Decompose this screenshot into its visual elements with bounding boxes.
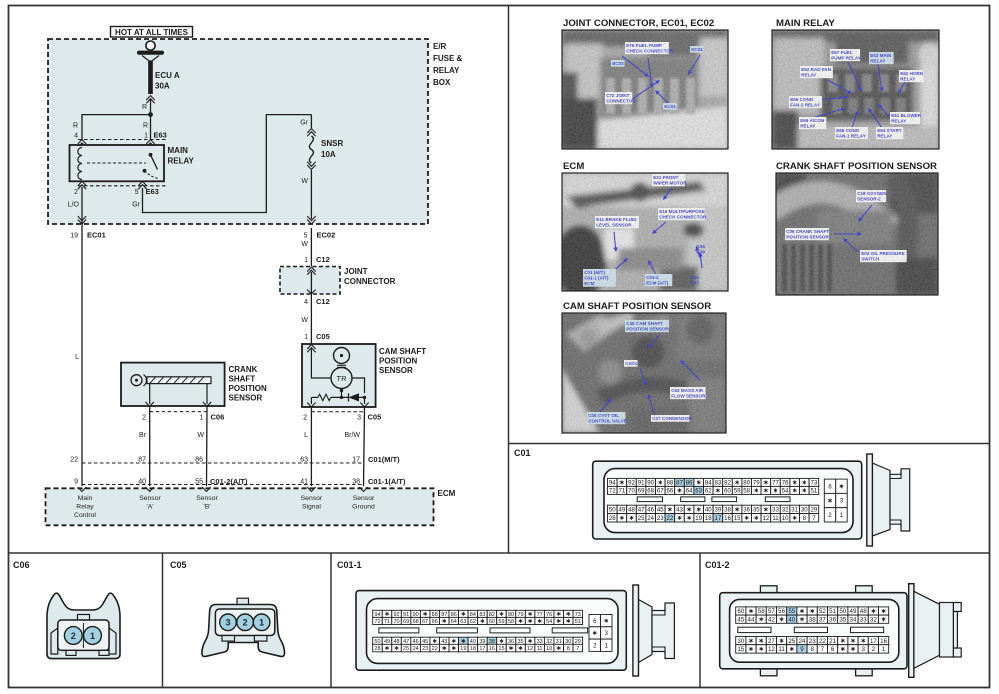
svg-text:W: W [301, 178, 308, 185]
svg-text:R: R [143, 123, 148, 130]
svg-text:10: 10 [782, 515, 789, 522]
svg-text:29: 29 [811, 507, 818, 514]
svg-text:33: 33 [772, 507, 779, 514]
svg-text:2: 2 [872, 646, 876, 653]
svg-text:L/O: L/O [68, 202, 80, 209]
svg-text:15: 15 [498, 646, 504, 652]
svg-text:40: 40 [705, 507, 712, 514]
svg-text:30: 30 [737, 638, 744, 645]
svg-text:2: 2 [74, 189, 78, 196]
svg-text:18: 18 [470, 646, 476, 652]
svg-text:1: 1 [259, 618, 264, 628]
svg-text:84: 84 [705, 480, 712, 487]
svg-text:TR: TR [337, 374, 348, 383]
svg-text:22: 22 [70, 457, 78, 464]
svg-text:JOINT: JOINT [344, 267, 368, 276]
svg-text:Sensor: Sensor [139, 495, 161, 502]
svg-text:38: 38 [724, 507, 731, 514]
svg-text:12: 12 [768, 646, 775, 653]
svg-text:17: 17 [479, 646, 485, 652]
svg-text:52: 52 [819, 608, 826, 615]
svg-text:C01-1(A/T): C01-1(A/T) [368, 477, 406, 486]
svg-text:'A': 'A' [146, 504, 153, 511]
svg-text:80: 80 [508, 612, 514, 618]
svg-text:1: 1 [304, 257, 308, 264]
svg-text:47: 47 [638, 507, 645, 514]
svg-text:71: 71 [619, 488, 626, 495]
svg-text:RELAY: RELAY [168, 157, 195, 166]
svg-text:80: 80 [743, 480, 750, 487]
svg-text:77: 77 [537, 612, 543, 618]
svg-text:3: 3 [225, 618, 230, 628]
svg-text:2: 2 [243, 618, 248, 628]
svg-text:35: 35 [753, 507, 760, 514]
svg-text:12: 12 [527, 646, 533, 652]
svg-text:45: 45 [737, 616, 744, 623]
svg-text:79: 79 [518, 612, 524, 618]
svg-text:67: 67 [422, 619, 428, 625]
svg-text:SENSOR: SENSOR [379, 366, 413, 375]
svg-text:11: 11 [778, 646, 785, 653]
svg-text:W: W [197, 432, 204, 439]
svg-text:5: 5 [135, 189, 139, 196]
svg-text:41: 41 [300, 479, 308, 486]
svg-text:25: 25 [788, 638, 795, 645]
svg-text:82: 82 [489, 612, 495, 618]
svg-text:Main: Main [78, 495, 93, 502]
svg-text:24: 24 [647, 515, 654, 522]
svg-text:55: 55 [788, 608, 795, 615]
svg-text:84: 84 [470, 612, 476, 618]
svg-text:16: 16 [724, 515, 731, 522]
svg-text:57: 57 [768, 608, 775, 615]
svg-text:83: 83 [715, 480, 722, 487]
svg-text:1: 1 [882, 646, 886, 653]
svg-text:59: 59 [498, 619, 504, 625]
svg-text:46: 46 [647, 507, 654, 514]
svg-text:60: 60 [724, 488, 731, 495]
svg-text:86: 86 [195, 457, 203, 464]
svg-text:1: 1 [200, 415, 204, 422]
svg-text:59: 59 [734, 488, 741, 495]
svg-text:88: 88 [667, 480, 674, 487]
svg-text:87: 87 [441, 612, 447, 618]
svg-text:3: 3 [861, 646, 865, 653]
svg-text:38: 38 [352, 479, 360, 486]
svg-text:8: 8 [810, 646, 814, 653]
svg-text:1: 1 [90, 631, 95, 641]
svg-text:79: 79 [753, 480, 760, 487]
svg-text:40: 40 [138, 479, 146, 486]
svg-text:CRANK: CRANK [229, 365, 258, 374]
svg-text:11: 11 [772, 515, 779, 522]
svg-text:MAIN: MAIN [168, 146, 189, 155]
svg-text:63: 63 [695, 488, 702, 495]
svg-text:36: 36 [743, 507, 750, 514]
svg-text:32: 32 [870, 616, 877, 623]
svg-text:58: 58 [508, 619, 514, 625]
svg-text:4: 4 [74, 133, 78, 140]
svg-text:22: 22 [667, 515, 674, 522]
svg-text:64: 64 [686, 488, 693, 495]
svg-text:48: 48 [628, 507, 635, 514]
svg-text:C06: C06 [13, 560, 30, 570]
svg-text:36: 36 [829, 616, 836, 623]
svg-text:MAIN RELAY: MAIN RELAY [776, 18, 835, 29]
svg-text:51: 51 [829, 608, 836, 615]
svg-text:54: 54 [782, 488, 789, 495]
svg-text:19: 19 [460, 646, 466, 652]
svg-text:30A: 30A [155, 82, 170, 91]
svg-text:34: 34 [850, 616, 857, 623]
svg-text:R: R [142, 104, 147, 111]
svg-text:27: 27 [768, 638, 775, 645]
svg-text:Ground: Ground [352, 504, 375, 511]
svg-text:92: 92 [393, 612, 399, 618]
svg-text:38: 38 [809, 616, 816, 623]
svg-text:87: 87 [676, 480, 683, 487]
svg-text:91: 91 [403, 612, 409, 618]
svg-text:39: 39 [715, 507, 722, 514]
svg-text:94: 94 [609, 480, 616, 487]
svg-text:88: 88 [432, 612, 438, 618]
svg-text:31: 31 [791, 507, 798, 514]
svg-text:82: 82 [724, 480, 731, 487]
svg-text:76: 76 [546, 612, 552, 618]
svg-text:62: 62 [705, 488, 712, 495]
svg-text:72: 72 [374, 619, 380, 625]
svg-text:94: 94 [374, 612, 380, 618]
svg-text:92: 92 [628, 480, 635, 487]
svg-text:SHAFT: SHAFT [229, 375, 256, 384]
svg-text:23: 23 [657, 515, 664, 522]
svg-text:R: R [73, 123, 78, 130]
svg-text:2: 2 [71, 631, 76, 641]
svg-text:87: 87 [138, 457, 146, 464]
svg-text:10A: 10A [321, 150, 336, 159]
svg-text:50: 50 [839, 608, 846, 615]
svg-text:22: 22 [432, 646, 438, 652]
svg-text:76: 76 [782, 480, 789, 487]
svg-text:C01: C01 [514, 448, 531, 458]
svg-text:L: L [75, 354, 79, 361]
svg-text:43: 43 [676, 507, 683, 514]
svg-text:Br/W: Br/W [344, 432, 360, 439]
svg-text:24: 24 [799, 638, 806, 645]
svg-text:68: 68 [647, 488, 654, 495]
svg-text:'B': 'B' [203, 504, 210, 511]
svg-text:9: 9 [74, 479, 78, 486]
svg-text:C01-1: C01-1 [337, 560, 362, 570]
svg-text:18: 18 [705, 515, 712, 522]
svg-text:90: 90 [647, 480, 654, 487]
svg-text:Sensor: Sensor [196, 495, 218, 502]
svg-text:C12: C12 [316, 255, 330, 264]
svg-text:11: 11 [537, 646, 543, 652]
svg-text:55: 55 [195, 479, 203, 486]
svg-text:60: 60 [489, 619, 495, 625]
svg-text:EC01: EC01 [87, 231, 106, 240]
svg-text:42: 42 [768, 616, 775, 623]
svg-text:CRANK SHAFT POSITION SENSOR: CRANK SHAFT POSITION SENSOR [776, 161, 937, 172]
svg-text:CONNECTOR: CONNECTOR [344, 277, 396, 286]
svg-text:RELAY: RELAY [433, 66, 460, 75]
svg-text:C05: C05 [170, 560, 187, 570]
svg-text:19: 19 [70, 233, 78, 240]
svg-text:16: 16 [489, 646, 495, 652]
svg-text:64: 64 [451, 619, 457, 625]
svg-text:C01-2: C01-2 [705, 560, 730, 570]
svg-text:62: 62 [470, 619, 476, 625]
svg-text:49: 49 [619, 507, 626, 514]
svg-text:86: 86 [686, 480, 693, 487]
svg-text:SNSR: SNSR [321, 139, 343, 148]
svg-text:Br: Br [139, 432, 147, 439]
svg-text:71: 71 [384, 619, 390, 625]
svg-text:56: 56 [778, 608, 785, 615]
svg-text:23: 23 [809, 638, 816, 645]
svg-text:2: 2 [303, 415, 307, 422]
svg-text:7: 7 [821, 646, 825, 653]
svg-text:5: 5 [304, 233, 308, 240]
svg-text:69: 69 [403, 619, 409, 625]
svg-text:6: 6 [831, 646, 835, 653]
svg-text:Sensor: Sensor [353, 495, 375, 502]
svg-text:17: 17 [715, 515, 722, 522]
svg-text:60: 60 [737, 608, 744, 615]
svg-text:JOINT CONNECTOR, EC01, EC02: JOINT CONNECTOR, EC01, EC02 [563, 18, 714, 29]
svg-text:35: 35 [839, 616, 846, 623]
svg-text:28: 28 [374, 646, 380, 652]
svg-text:C12: C12 [316, 297, 330, 306]
svg-text:C01-2(A/T): C01-2(A/T) [210, 477, 248, 486]
svg-text:83: 83 [479, 612, 485, 618]
svg-text:67: 67 [657, 488, 664, 495]
svg-text:2: 2 [142, 415, 146, 422]
svg-text:45: 45 [657, 507, 664, 514]
svg-text:70: 70 [628, 488, 635, 495]
svg-text:1: 1 [304, 334, 308, 341]
svg-text:ECM: ECM [563, 161, 584, 172]
svg-text:W: W [301, 241, 308, 248]
svg-text:12: 12 [763, 515, 770, 522]
svg-text:POSITION: POSITION [379, 357, 417, 366]
svg-text:68: 68 [413, 619, 419, 625]
svg-text:W: W [301, 317, 308, 324]
svg-text:Control: Control [74, 512, 96, 519]
svg-text:HOT AT ALL TIMES: HOT AT ALL TIMES [115, 28, 189, 37]
svg-text:32: 32 [782, 507, 789, 514]
svg-text:54: 54 [546, 619, 552, 625]
svg-text:25: 25 [638, 515, 645, 522]
svg-text:3: 3 [357, 415, 361, 422]
svg-text:1: 1 [144, 133, 148, 140]
svg-text:22: 22 [819, 638, 826, 645]
svg-text:Relay: Relay [76, 504, 94, 511]
svg-text:33: 33 [860, 616, 867, 623]
svg-text:17: 17 [870, 638, 877, 645]
svg-text:Sensor: Sensor [301, 495, 323, 502]
svg-text:28: 28 [609, 515, 616, 522]
svg-text:63: 63 [300, 457, 308, 464]
svg-text:63: 63 [460, 619, 466, 625]
svg-text:58: 58 [758, 608, 765, 615]
svg-text:21: 21 [829, 638, 836, 645]
svg-text:ECM: ECM [438, 489, 456, 498]
svg-text:73: 73 [575, 612, 581, 618]
svg-text:POSITION: POSITION [229, 384, 267, 393]
svg-text:25: 25 [403, 646, 409, 652]
svg-text:48: 48 [860, 608, 867, 615]
svg-text:9: 9 [800, 646, 804, 653]
svg-text:44: 44 [748, 616, 755, 623]
svg-text:Gr: Gr [132, 202, 140, 209]
svg-text:23: 23 [422, 646, 428, 652]
svg-text:15: 15 [734, 515, 741, 522]
svg-text:FUSE &: FUSE & [433, 54, 463, 63]
svg-text:73: 73 [811, 480, 818, 487]
svg-text:77: 77 [772, 480, 779, 487]
svg-text:69: 69 [638, 488, 645, 495]
svg-text:50: 50 [609, 507, 616, 514]
svg-text:SENSOR: SENSOR [229, 394, 263, 403]
svg-text:49: 49 [850, 608, 857, 615]
svg-text:E63: E63 [154, 131, 167, 140]
svg-text:24: 24 [413, 646, 419, 652]
svg-text:EC02: EC02 [317, 231, 336, 240]
svg-text:70: 70 [393, 619, 399, 625]
svg-text:66: 66 [667, 488, 674, 495]
svg-text:10: 10 [546, 646, 552, 652]
svg-text:91: 91 [638, 480, 645, 487]
svg-text:7: 7 [812, 515, 816, 522]
svg-text:72: 72 [609, 488, 616, 495]
svg-text:E63: E63 [146, 187, 159, 196]
svg-text:58: 58 [743, 488, 750, 495]
svg-text:E/R: E/R [433, 42, 447, 51]
svg-text:66: 66 [432, 619, 438, 625]
svg-text:L: L [304, 432, 308, 439]
svg-text:4: 4 [304, 299, 308, 306]
svg-text:16: 16 [880, 638, 887, 645]
svg-text:86: 86 [451, 612, 457, 618]
svg-text:C05: C05 [368, 413, 382, 422]
svg-text:C06: C06 [211, 413, 225, 422]
svg-text:C05: C05 [316, 332, 330, 341]
svg-text:7: 7 [576, 646, 579, 652]
svg-text:17: 17 [352, 457, 360, 464]
svg-text:BOX: BOX [433, 78, 451, 87]
svg-text:CAM SHAFT POSITION SENSOR: CAM SHAFT POSITION SENSOR [563, 301, 711, 312]
svg-text:51: 51 [575, 619, 581, 625]
svg-text:8: 8 [567, 646, 570, 652]
svg-text:15: 15 [737, 646, 744, 653]
svg-text:19: 19 [695, 515, 702, 522]
svg-text:40: 40 [788, 616, 795, 623]
svg-text:ECU A: ECU A [155, 71, 180, 80]
svg-text:C01(M/T): C01(M/T) [368, 455, 400, 464]
svg-text:37: 37 [819, 616, 826, 623]
svg-text:Signal: Signal [302, 504, 321, 511]
svg-text:90: 90 [413, 612, 419, 618]
svg-text:Gr: Gr [300, 120, 308, 127]
svg-text:51: 51 [811, 488, 818, 495]
svg-text:30: 30 [801, 507, 808, 514]
svg-text:CAM SHAFT: CAM SHAFT [379, 347, 426, 356]
